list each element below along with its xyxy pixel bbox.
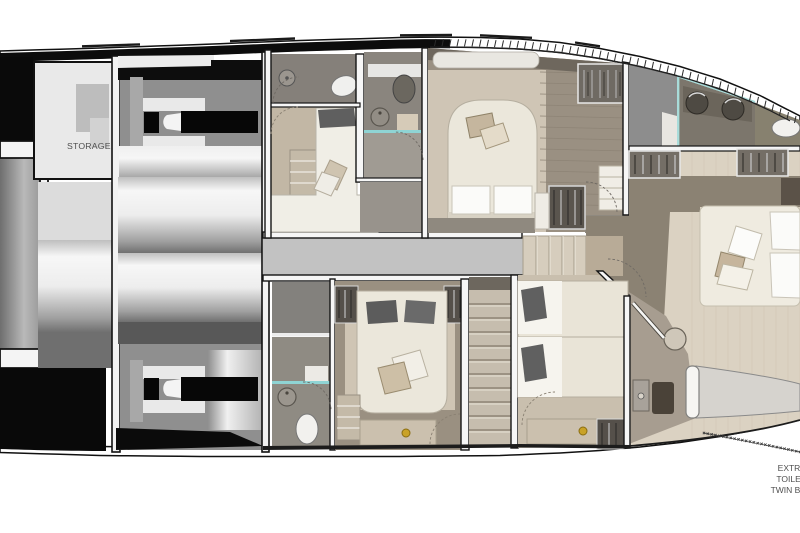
svg-text:EXTRA: EXTRA bbox=[778, 463, 800, 473]
svg-text:STORAGE: STORAGE bbox=[67, 141, 111, 151]
svg-text:TWIN BE: TWIN BE bbox=[771, 485, 800, 495]
svg-text:TOILET: TOILET bbox=[776, 474, 800, 484]
